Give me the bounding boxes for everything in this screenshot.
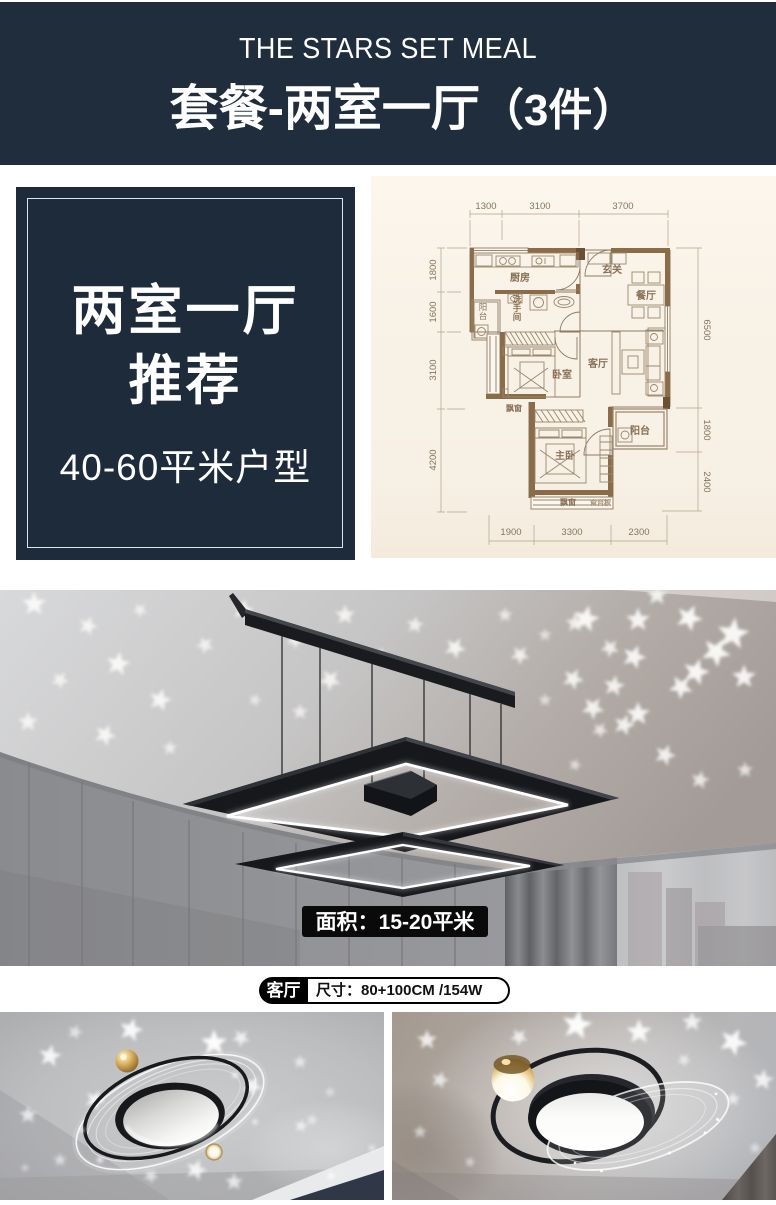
svg-text:厨房: 厨房 — [510, 271, 530, 284]
svg-text:餐厅: 餐厅 — [635, 289, 656, 302]
svg-text:洗手间: 洗手间 — [513, 294, 522, 322]
svg-text:6500: 6500 — [701, 319, 712, 340]
svg-text:阳台: 阳台 — [479, 302, 488, 321]
svg-text:2400: 2400 — [701, 471, 712, 492]
svg-text:飘窗: 飘窗 — [506, 403, 522, 413]
svg-text:客厅: 客厅 — [587, 357, 608, 370]
svg-text:4200: 4200 — [428, 449, 439, 470]
svg-text:卧室: 卧室 — [552, 368, 572, 381]
svg-text:1800: 1800 — [701, 419, 712, 440]
svg-text:主卧: 主卧 — [555, 449, 575, 462]
svg-text:1900: 1900 — [500, 527, 521, 538]
svg-text:玄关: 玄关 — [602, 263, 622, 276]
svg-text:3700: 3700 — [612, 201, 633, 212]
svg-text:3100: 3100 — [529, 201, 550, 212]
svg-text:3100: 3100 — [428, 359, 439, 380]
svg-text:阳台: 阳台 — [630, 424, 650, 437]
svg-text:飘窗: 飘窗 — [560, 497, 576, 507]
svg-text:1300: 1300 — [475, 201, 496, 212]
svg-text:2300: 2300 — [628, 527, 649, 538]
svg-text:面积：15-20平米: 面积：15-20平米 — [316, 911, 476, 934]
svg-text:3300: 3300 — [561, 527, 582, 538]
svg-text:1600: 1600 — [428, 301, 439, 322]
svg-text:窗台板: 窗台板 — [590, 498, 612, 507]
svg-text:1800: 1800 — [428, 259, 439, 280]
